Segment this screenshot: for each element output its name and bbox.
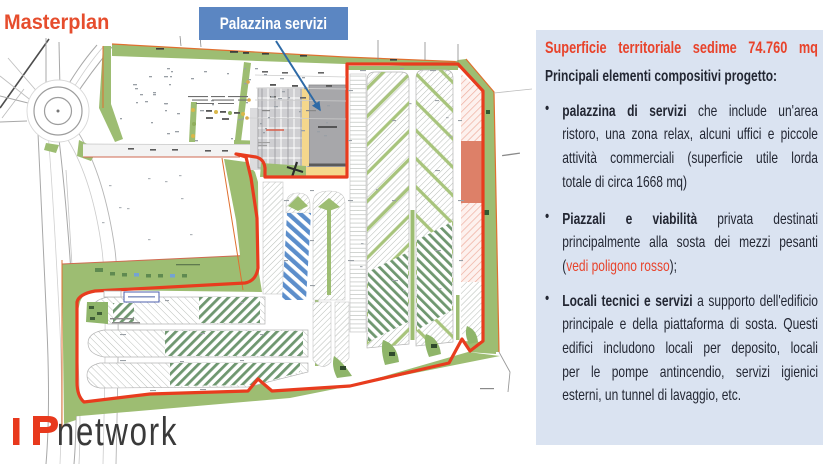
svg-text:network: network <box>57 409 178 454</box>
